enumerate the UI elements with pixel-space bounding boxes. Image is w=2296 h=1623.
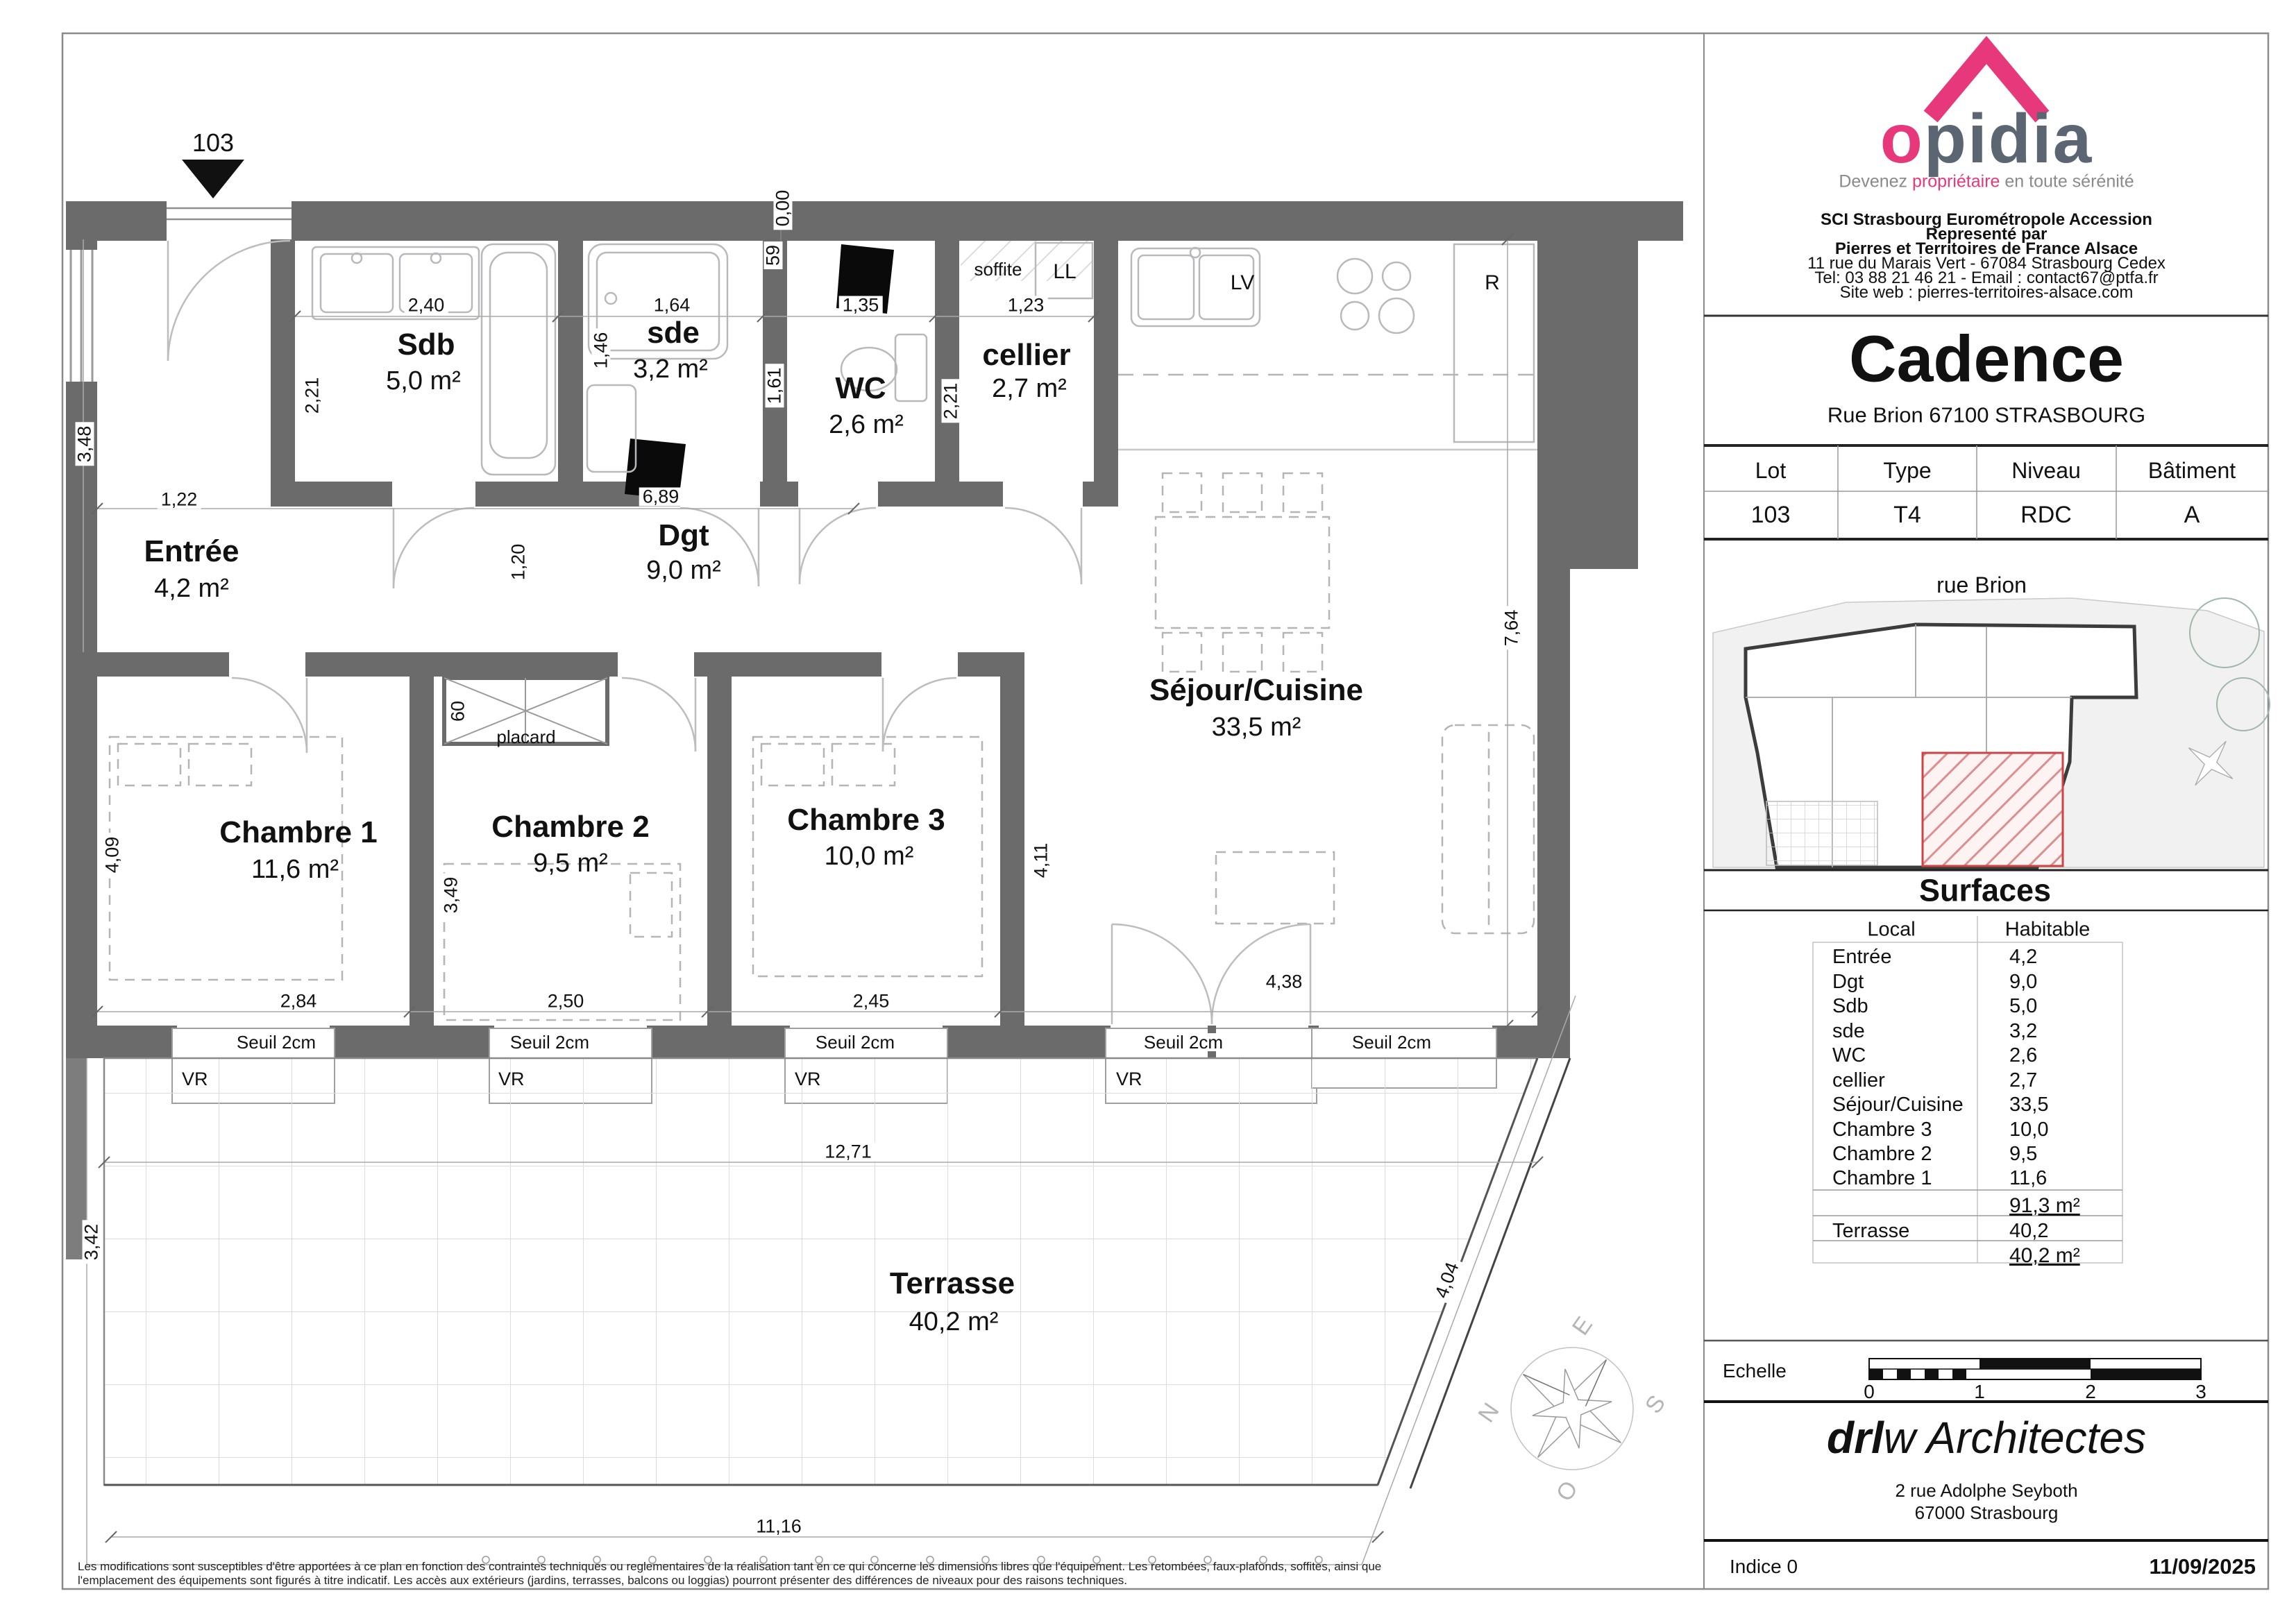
- washing-machine-label: LL: [1053, 262, 1076, 282]
- seuil-label: Seuil 2cm: [235, 1033, 318, 1051]
- terrace-total: 40,2 m²: [2009, 1246, 2080, 1266]
- surface-value: 4,2: [2009, 947, 2037, 967]
- surface-local: Séjour/Cuisine: [1832, 1095, 1964, 1115]
- room-area-sde: 3,2 m²: [633, 356, 708, 382]
- plan-sheet: 103 Sdb 5,0 m² sde 3,2 m² WC 2,6 m² cell…: [0, 0, 2296, 1623]
- street-label: rue Brion: [1936, 574, 2027, 596]
- room-name-chambre1: Chambre 1: [219, 817, 377, 848]
- dim: 1,61: [766, 364, 784, 408]
- surface-local: Chambre 1: [1832, 1169, 1932, 1189]
- dim: 1,20: [509, 541, 528, 584]
- logo-rest: pidia: [1924, 100, 2093, 178]
- company-block: SCI Strasbourg Eurométropole Accession R…: [1732, 212, 2241, 300]
- surfaces-col-habitable: Habitable: [2005, 920, 2091, 940]
- lot-table-header-lot: Lot: [1755, 459, 1786, 482]
- indice-label: Indice 0: [1730, 1557, 1798, 1577]
- lot-table-value-type: T4: [1893, 503, 1921, 527]
- lot-table-header-type: Type: [1883, 459, 1931, 482]
- tagline-part2: en toute sérénité: [2000, 172, 2134, 192]
- scale-tick: 1: [1974, 1382, 1985, 1402]
- scale-label: Echelle: [1723, 1361, 1787, 1381]
- dim: 4,09: [103, 833, 122, 877]
- surface-local: cellier: [1832, 1071, 1885, 1091]
- dishwasher-label: LV: [1231, 273, 1254, 294]
- scale-tick: 0: [1864, 1382, 1875, 1402]
- surfaces-total: 91,3 m²: [2009, 1196, 2080, 1216]
- site-map: [1713, 598, 2270, 867]
- entry-window: [71, 250, 92, 382]
- vr-label: VR: [1116, 1070, 1142, 1089]
- placard-label: placard: [496, 728, 555, 746]
- lot-table-value-niveau: RDC: [2020, 503, 2072, 527]
- room-name-sdb: Sdb: [397, 330, 455, 360]
- room-area-wc: 2,6 m²: [829, 411, 904, 438]
- room-name-cellier: cellier: [982, 340, 1070, 371]
- lot-table-value-batiment: A: [2184, 503, 2200, 527]
- scale-tick: 2: [2085, 1382, 2096, 1402]
- room-area-sejour: 33,5 m²: [1212, 714, 1301, 740]
- room-area-chambre2: 9,5 m²: [533, 850, 608, 876]
- surface-local: sde: [1832, 1021, 1865, 1042]
- dim: 3,49: [442, 874, 461, 917]
- dim: 3,48: [76, 423, 94, 466]
- dim: 1,64: [650, 296, 694, 315]
- surface-value: 9,0: [2009, 972, 2037, 992]
- tagline-part1: Devenez: [1839, 172, 1912, 192]
- surface-local: WC: [1832, 1046, 1866, 1066]
- project-address: Rue Brion 67100 STRASBOURG: [1827, 405, 2145, 426]
- lot-arrow-icon: [182, 160, 244, 198]
- room-name-sde: sde: [647, 318, 700, 348]
- room-name-wc: WC: [835, 373, 886, 404]
- surface-local: Chambre 3: [1832, 1120, 1932, 1140]
- surfaces-col-local: Local: [1867, 920, 1915, 940]
- room-name-sejour: Séjour/Cuisine: [1149, 675, 1363, 706]
- room-area-entree: 4,2 m²: [154, 575, 229, 602]
- room-area-chambre3: 10,0 m²: [825, 843, 914, 869]
- date-label: 11/09/2025: [2048, 1556, 2256, 1577]
- scale-bar: [1869, 1359, 2201, 1379]
- lot-table-value-lot: 103: [1751, 503, 1791, 527]
- dim: 4,11: [1032, 840, 1051, 882]
- room-area-chambre1: 11,6 m²: [251, 856, 339, 883]
- architect-name-right: Architectes: [1916, 1413, 2146, 1463]
- project-title: Cadence: [1849, 327, 2124, 393]
- surface-local: Chambre 2: [1832, 1144, 1932, 1164]
- architect-name-mid: w: [1884, 1413, 1916, 1463]
- dim: 60: [449, 697, 468, 725]
- room-area-dgt: 9,0 m²: [646, 557, 721, 584]
- architect-address1: 2 rue Adolphe Seyboth: [1801, 1479, 2172, 1502]
- architect-name: drlw Architectes: [1827, 1416, 2146, 1460]
- terrace-value: 40,2: [2009, 1221, 2048, 1241]
- surface-value: 3,2: [2009, 1021, 2037, 1042]
- room-name-chambre3: Chambre 3: [787, 805, 945, 835]
- room-area-cellier: 2,7 m²: [992, 375, 1067, 402]
- lot-table-header-niveau: Niveau: [2011, 459, 2081, 482]
- room-name-terrasse: Terrasse: [890, 1268, 1015, 1299]
- surface-local: Dgt: [1832, 972, 1864, 992]
- architect-address2: 67000 Strasbourg: [1801, 1502, 2172, 1524]
- surface-value: 10,0: [2009, 1120, 2048, 1140]
- room-name-dgt: Dgt: [658, 520, 709, 551]
- dim: 0,00: [774, 187, 793, 230]
- disclaimer-text: Les modifications sont susceptibles d'êt…: [78, 1560, 1452, 1588]
- seuil-label: Seuil 2cm: [813, 1033, 897, 1051]
- room-name-chambre2: Chambre 2: [491, 812, 649, 842]
- room-area-sdb: 5,0 m²: [386, 368, 461, 394]
- company-line: Site web : pierres-territoires-alsace.co…: [1732, 285, 2241, 300]
- surface-local: Entrée: [1832, 947, 1891, 967]
- dim: 2,40: [405, 296, 448, 315]
- tagline-accent: propriétaire: [1912, 172, 2000, 192]
- dim: 1,22: [158, 491, 201, 509]
- surface-value: 5,0: [2009, 996, 2037, 1017]
- dim: 4,38: [1263, 973, 1306, 992]
- lot-marker: 103: [192, 130, 234, 155]
- dim: 7,64: [1503, 606, 1521, 650]
- room-name-entree: Entrée: [144, 536, 239, 567]
- surface-value: 33,5: [2009, 1095, 2048, 1115]
- surface-local: Sdb: [1832, 996, 1868, 1017]
- fixtures: [312, 243, 1537, 475]
- dim: 1,23: [1004, 296, 1048, 315]
- dim: 59: [764, 241, 783, 269]
- dim: 6,89: [639, 488, 683, 507]
- surface-value: 11,6: [2009, 1169, 2047, 1189]
- dim: 2,45: [850, 992, 893, 1011]
- logo-tagline: Devenez propriétaire en toute sérénité: [1839, 173, 2134, 191]
- soffite-label: soffite: [974, 260, 1022, 278]
- logo-opidia: opidia: [1880, 104, 2093, 173]
- lot-table-header-batiment: Bâtiment: [2148, 459, 2236, 482]
- compass-rose-icon: [1489, 1325, 1655, 1492]
- dim: 12,71: [821, 1143, 875, 1162]
- dim: 3,42: [83, 1221, 101, 1264]
- vr-label: VR: [795, 1070, 821, 1089]
- terrace-local: Terrasse: [1832, 1221, 1909, 1241]
- dim: 2,21: [303, 374, 322, 418]
- panel-lines: [1704, 316, 2268, 1540]
- surface-value: 2,6: [2009, 1046, 2037, 1066]
- architect-address: 2 rue Adolphe Seyboth 67000 Strasbourg: [1801, 1479, 2172, 1524]
- seuil-label: Seuil 2cm: [508, 1033, 591, 1051]
- seuil-label: Seuil 2cm: [1142, 1033, 1225, 1051]
- fridge-label: R: [1485, 273, 1500, 294]
- vr-label: VR: [498, 1070, 525, 1089]
- logo-first-letter: o: [1880, 100, 1924, 178]
- dim: 2,84: [277, 992, 321, 1011]
- dim: 11,16: [752, 1518, 805, 1536]
- terrace: [87, 996, 1576, 1565]
- vr-label: VR: [182, 1070, 208, 1089]
- dim: 1,35: [839, 296, 883, 315]
- dim: 2,21: [942, 380, 961, 423]
- scale-tick: 3: [2195, 1382, 2206, 1402]
- dim: 2,50: [544, 992, 588, 1011]
- seuil-label: Seuil 2cm: [1350, 1033, 1433, 1051]
- room-area-terrasse: 40,2 m²: [909, 1309, 999, 1335]
- dim: 1,46: [592, 329, 611, 373]
- surface-value: 2,7: [2009, 1071, 2037, 1091]
- surfaces-title: Surfaces: [1919, 875, 2051, 906]
- architect-name-left: drl: [1827, 1413, 1884, 1463]
- surface-value: 9,5: [2009, 1144, 2037, 1164]
- door-swings: [168, 241, 1310, 1024]
